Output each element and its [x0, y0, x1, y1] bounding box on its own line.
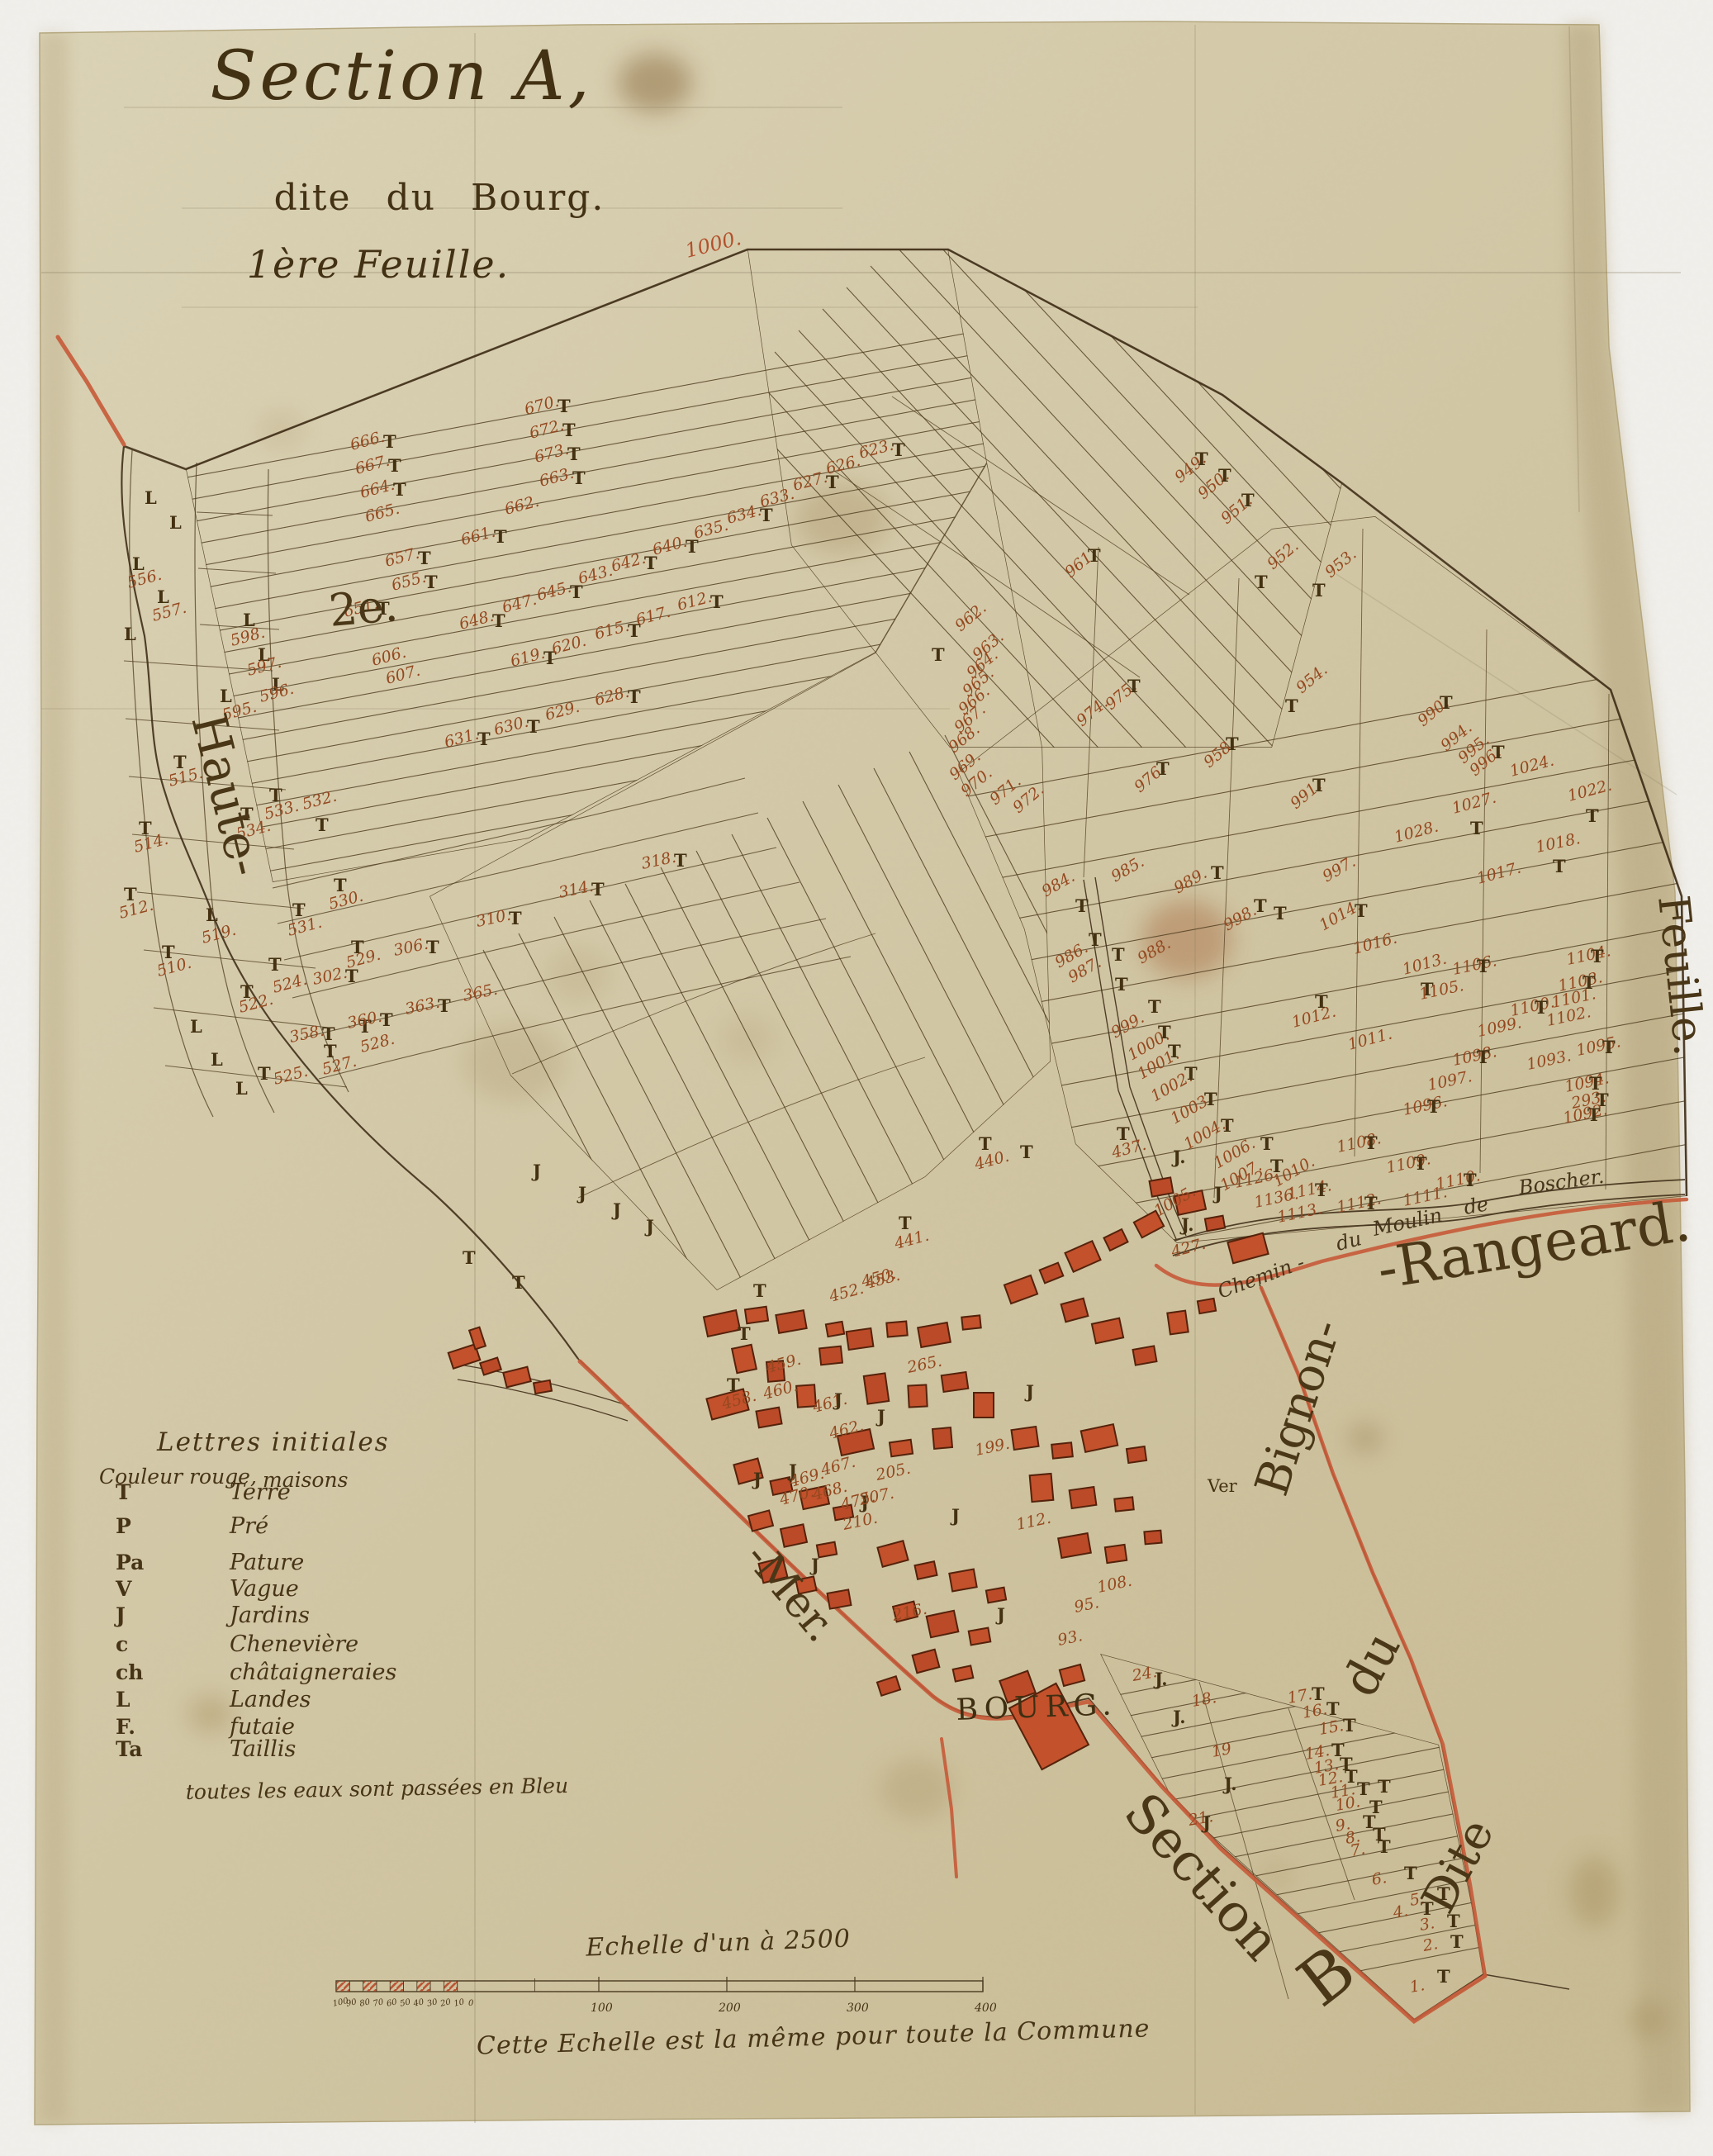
svg-text:T: T	[380, 1009, 393, 1030]
svg-text:T: T	[1602, 1037, 1616, 1057]
svg-text:J: J	[950, 1505, 960, 1526]
svg-text:T: T	[477, 729, 491, 749]
legend-abbr: ch	[116, 1660, 143, 1684]
svg-text:T: T	[1315, 1180, 1328, 1200]
legend-abbr: Ta	[116, 1737, 142, 1761]
svg-text:T: T	[316, 814, 329, 835]
svg-text:T: T	[1115, 974, 1128, 995]
svg-text:T: T	[1075, 895, 1089, 916]
legend-term: Pature	[229, 1550, 304, 1575]
svg-text:T: T	[1088, 545, 1101, 566]
svg-text:1.: 1.	[1408, 1976, 1426, 1997]
svg-text:T: T	[1587, 1104, 1601, 1125]
sheet-subtitle: dite du Bourg.	[274, 177, 605, 219]
svg-text:T: T	[494, 526, 507, 547]
svg-text:J.: J.	[1179, 1214, 1194, 1235]
svg-text:0: 0	[468, 1999, 474, 2008]
svg-text:T: T	[738, 1323, 751, 1344]
legend-term: Terre	[230, 1479, 291, 1505]
svg-text:T: T	[1241, 490, 1255, 511]
svg-text:T: T	[418, 548, 431, 568]
svg-text:J: J	[611, 1199, 621, 1220]
svg-text:J.: J.	[1222, 1774, 1237, 1794]
svg-text:T: T	[1156, 758, 1170, 779]
svg-text:de: de	[1462, 1192, 1490, 1219]
svg-text:T: T	[892, 439, 905, 460]
svg-text:T: T	[674, 850, 687, 871]
svg-text:T: T	[512, 1272, 525, 1293]
svg-text:7.: 7.	[1349, 1840, 1367, 1860]
svg-text:T: T	[1312, 580, 1326, 601]
svg-text:J: J	[644, 1216, 654, 1237]
svg-text:J: J	[833, 1389, 842, 1410]
svg-text:T: T	[1204, 1089, 1217, 1109]
svg-text:L: L	[145, 487, 157, 508]
svg-text:T: T	[558, 396, 571, 416]
svg-text:T: T	[1221, 1115, 1234, 1136]
svg-text:T: T	[509, 908, 522, 928]
svg-text:T: T	[345, 966, 358, 986]
svg-text:300: 300	[847, 2002, 869, 2015]
svg-text:T: T	[1364, 1193, 1378, 1213]
legend-heading: Lettres initiales	[156, 1427, 390, 1457]
svg-text:T: T	[591, 879, 605, 900]
svg-text:4.: 4.	[1391, 1902, 1410, 1922]
svg-text:T: T	[1326, 1698, 1340, 1719]
svg-text:J: J	[809, 1555, 819, 1575]
svg-text:T: T	[1586, 805, 1599, 826]
svg-text:T: T	[1218, 465, 1231, 486]
legend-abbr: F.	[116, 1715, 135, 1739]
svg-text:J: J	[1212, 1183, 1222, 1204]
sheet-number: 1ère Feuille.	[247, 242, 510, 287]
svg-text:T: T	[258, 1063, 271, 1084]
svg-text:BOURG.: BOURG.	[956, 1688, 1117, 1727]
legend-abbr: P	[116, 1514, 131, 1538]
svg-text:T: T	[426, 937, 439, 957]
svg-text:T: T	[1226, 734, 1239, 754]
svg-text:T: T	[425, 572, 438, 592]
svg-text:J: J	[1024, 1381, 1034, 1402]
svg-text:T: T	[1437, 1966, 1450, 1987]
svg-text:T: T	[932, 644, 945, 665]
svg-text:T: T	[1315, 991, 1328, 1012]
legend-term: châtaigneraies	[230, 1660, 396, 1685]
svg-text:J: J	[995, 1604, 1005, 1625]
svg-text:2e.: 2e.	[327, 579, 401, 637]
svg-text:T: T	[1378, 1776, 1391, 1797]
cadastral-map-sheet: L598.L597.L596.L595.T534.T533.532.TT530.…	[0, 0, 1713, 2156]
legend-abbr: c	[116, 1632, 128, 1656]
svg-text:Ver: Ver	[1207, 1476, 1238, 1496]
svg-text:T: T	[567, 444, 581, 464]
svg-text:T: T	[1364, 1133, 1378, 1153]
svg-text:T: T	[1168, 1041, 1181, 1061]
svg-text:L: L	[190, 1016, 202, 1037]
svg-text:T: T	[1470, 818, 1483, 838]
svg-text:100: 100	[591, 2002, 613, 2015]
svg-text:T: T	[1184, 1063, 1198, 1084]
svg-text:L: L	[220, 686, 232, 706]
svg-text:T: T	[1591, 946, 1604, 966]
svg-text:3.: 3.	[1418, 1914, 1436, 1935]
svg-text:J: J	[1201, 1812, 1211, 1833]
svg-text:T: T	[1378, 1836, 1391, 1857]
svg-text:T: T	[1158, 1022, 1171, 1042]
legend-term: Pré	[229, 1513, 268, 1539]
svg-text:200: 200	[718, 2002, 741, 2015]
svg-text:T: T	[1112, 944, 1125, 965]
legend-abbr: Pa	[116, 1551, 144, 1574]
svg-text:T: T	[1117, 1123, 1130, 1144]
svg-text:T: T	[710, 591, 724, 612]
svg-text:T: T	[1195, 449, 1208, 469]
svg-text:T: T	[1089, 929, 1102, 950]
svg-text:T: T	[1492, 742, 1505, 762]
svg-text:T: T	[727, 1375, 740, 1395]
svg-text:T: T	[562, 420, 576, 440]
svg-text:J: J	[577, 1183, 586, 1204]
svg-text:T: T	[393, 479, 406, 500]
svg-text:L: L	[124, 624, 136, 644]
svg-text:T: T	[1440, 692, 1453, 713]
svg-text:L: L	[169, 512, 182, 533]
svg-text:T: T	[1343, 1715, 1356, 1736]
svg-text:19: 19	[1210, 1740, 1233, 1761]
svg-text:J: J	[531, 1161, 541, 1181]
svg-text:T: T	[1312, 775, 1326, 795]
legend-abbr: L	[116, 1688, 130, 1712]
svg-text:T: T	[1285, 696, 1298, 716]
svg-text:T: T	[1211, 862, 1224, 883]
svg-text:2.: 2.	[1421, 1935, 1440, 1955]
svg-text:T: T	[572, 468, 586, 488]
svg-text:T: T	[463, 1247, 476, 1268]
svg-text:J.: J.	[1171, 1147, 1186, 1167]
sheet-title: Section A,	[210, 37, 592, 116]
svg-text:T: T	[1477, 1047, 1490, 1067]
svg-text:J: J	[752, 1469, 762, 1489]
svg-text:400: 400	[974, 2002, 997, 2015]
svg-text:6.: 6.	[1370, 1869, 1388, 1889]
svg-text:T: T	[383, 431, 396, 452]
svg-text:T: T	[628, 686, 641, 707]
svg-text:T: T	[753, 1280, 766, 1301]
legend-term: Chenevière	[230, 1631, 358, 1657]
svg-text:J.: J.	[1171, 1707, 1186, 1727]
svg-text:T: T	[1260, 1133, 1274, 1154]
legend-abbr: V	[115, 1577, 132, 1601]
svg-text:L: L	[206, 905, 218, 925]
svg-text:T: T	[1427, 1096, 1440, 1117]
legend-abbr: J	[114, 1603, 126, 1627]
svg-text:T: T	[1020, 1142, 1033, 1162]
svg-text:T: T	[1477, 956, 1490, 976]
svg-text:T: T	[1535, 997, 1548, 1018]
svg-text:T: T	[1553, 856, 1566, 876]
svg-text:T: T	[1404, 1863, 1417, 1883]
svg-text:T: T	[1450, 1931, 1464, 1952]
svg-text:T: T	[268, 954, 282, 975]
legend-term: Taillis	[230, 1736, 296, 1762]
map-canvas: L598.L597.L596.L595.T534.T533.532.TT530.…	[0, 0, 1713, 2156]
svg-text:T: T	[1127, 676, 1141, 696]
svg-text:T: T	[388, 455, 401, 476]
svg-text:T: T	[1255, 572, 1268, 592]
svg-text:J: J	[875, 1406, 885, 1427]
svg-text:L: L	[235, 1078, 248, 1099]
svg-text:T: T	[1464, 1170, 1477, 1190]
legend-term: Jardins	[225, 1603, 310, 1628]
svg-text:T: T	[1274, 903, 1287, 924]
svg-text:T: T	[1148, 996, 1161, 1017]
svg-text:T: T	[322, 1023, 335, 1044]
svg-text:T: T	[1355, 900, 1368, 921]
legend-term: Vague	[230, 1576, 299, 1602]
svg-text:T: T	[438, 995, 451, 1016]
svg-text:T: T	[527, 716, 540, 737]
svg-text:L: L	[211, 1049, 223, 1070]
legend-abbr: T	[116, 1480, 131, 1504]
legend-term: Landes	[229, 1687, 311, 1712]
svg-text:T: T	[1414, 1153, 1427, 1174]
